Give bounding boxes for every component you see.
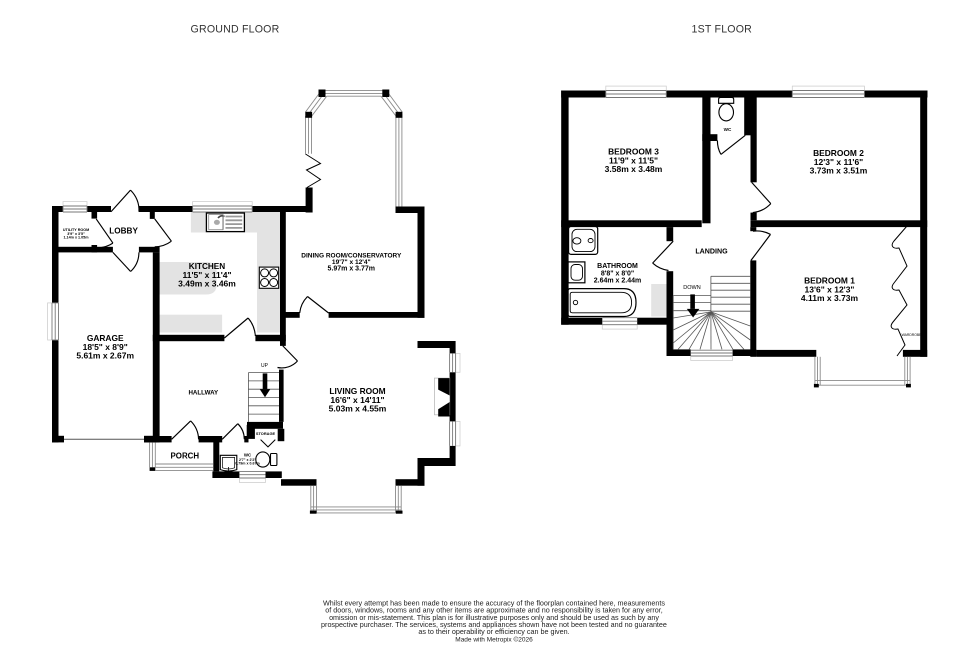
svg-text:STORAGE: STORAGE (256, 431, 276, 436)
svg-text:1.14m x 1.05m: 1.14m x 1.05m (63, 236, 89, 240)
svg-text:LANDING: LANDING (695, 247, 728, 255)
svg-text:DOWN: DOWN (683, 285, 700, 291)
svg-text:BATHROOM: BATHROOM (597, 263, 638, 270)
svg-text:3.58m x 3.48m: 3.58m x 3.48m (605, 164, 663, 174)
svg-text:Made with Metropix ©2026: Made with Metropix ©2026 (455, 635, 533, 643)
svg-text:PORCH: PORCH (171, 451, 200, 460)
svg-text:UP: UP (261, 363, 269, 369)
svg-text:HALLWAY: HALLWAY (188, 389, 219, 396)
svg-text:WC: WC (724, 127, 732, 132)
svg-text:4.11m x 3.73m: 4.11m x 3.73m (801, 293, 859, 303)
svg-text:0.79m x 0.67m: 0.79m x 0.67m (235, 461, 259, 465)
svg-text:3.49m x 3.46m: 3.49m x 3.46m (178, 279, 236, 289)
svg-text:8'8" x 8'0": 8'8" x 8'0" (601, 270, 634, 277)
svg-text:1ST FLOOR: 1ST FLOOR (692, 24, 753, 36)
svg-text:WC: WC (244, 453, 252, 458)
svg-text:3.73m x 3.51m: 3.73m x 3.51m (810, 165, 868, 175)
svg-text:5.97m x 3.77m: 5.97m x 3.77m (328, 266, 375, 273)
svg-text:WARDROBE: WARDROBE (902, 333, 923, 337)
svg-text:LOBBY: LOBBY (109, 226, 138, 235)
svg-text:GROUND FLOOR: GROUND FLOOR (191, 24, 280, 36)
svg-text:5.61m x 2.67m: 5.61m x 2.67m (76, 351, 134, 361)
svg-text:5.03m x 4.55m: 5.03m x 4.55m (329, 403, 387, 413)
svg-text:2.64m x 2.44m: 2.64m x 2.44m (594, 278, 641, 285)
svg-text:as to their operability or eff: as to their operability or efficiency ca… (418, 627, 569, 636)
